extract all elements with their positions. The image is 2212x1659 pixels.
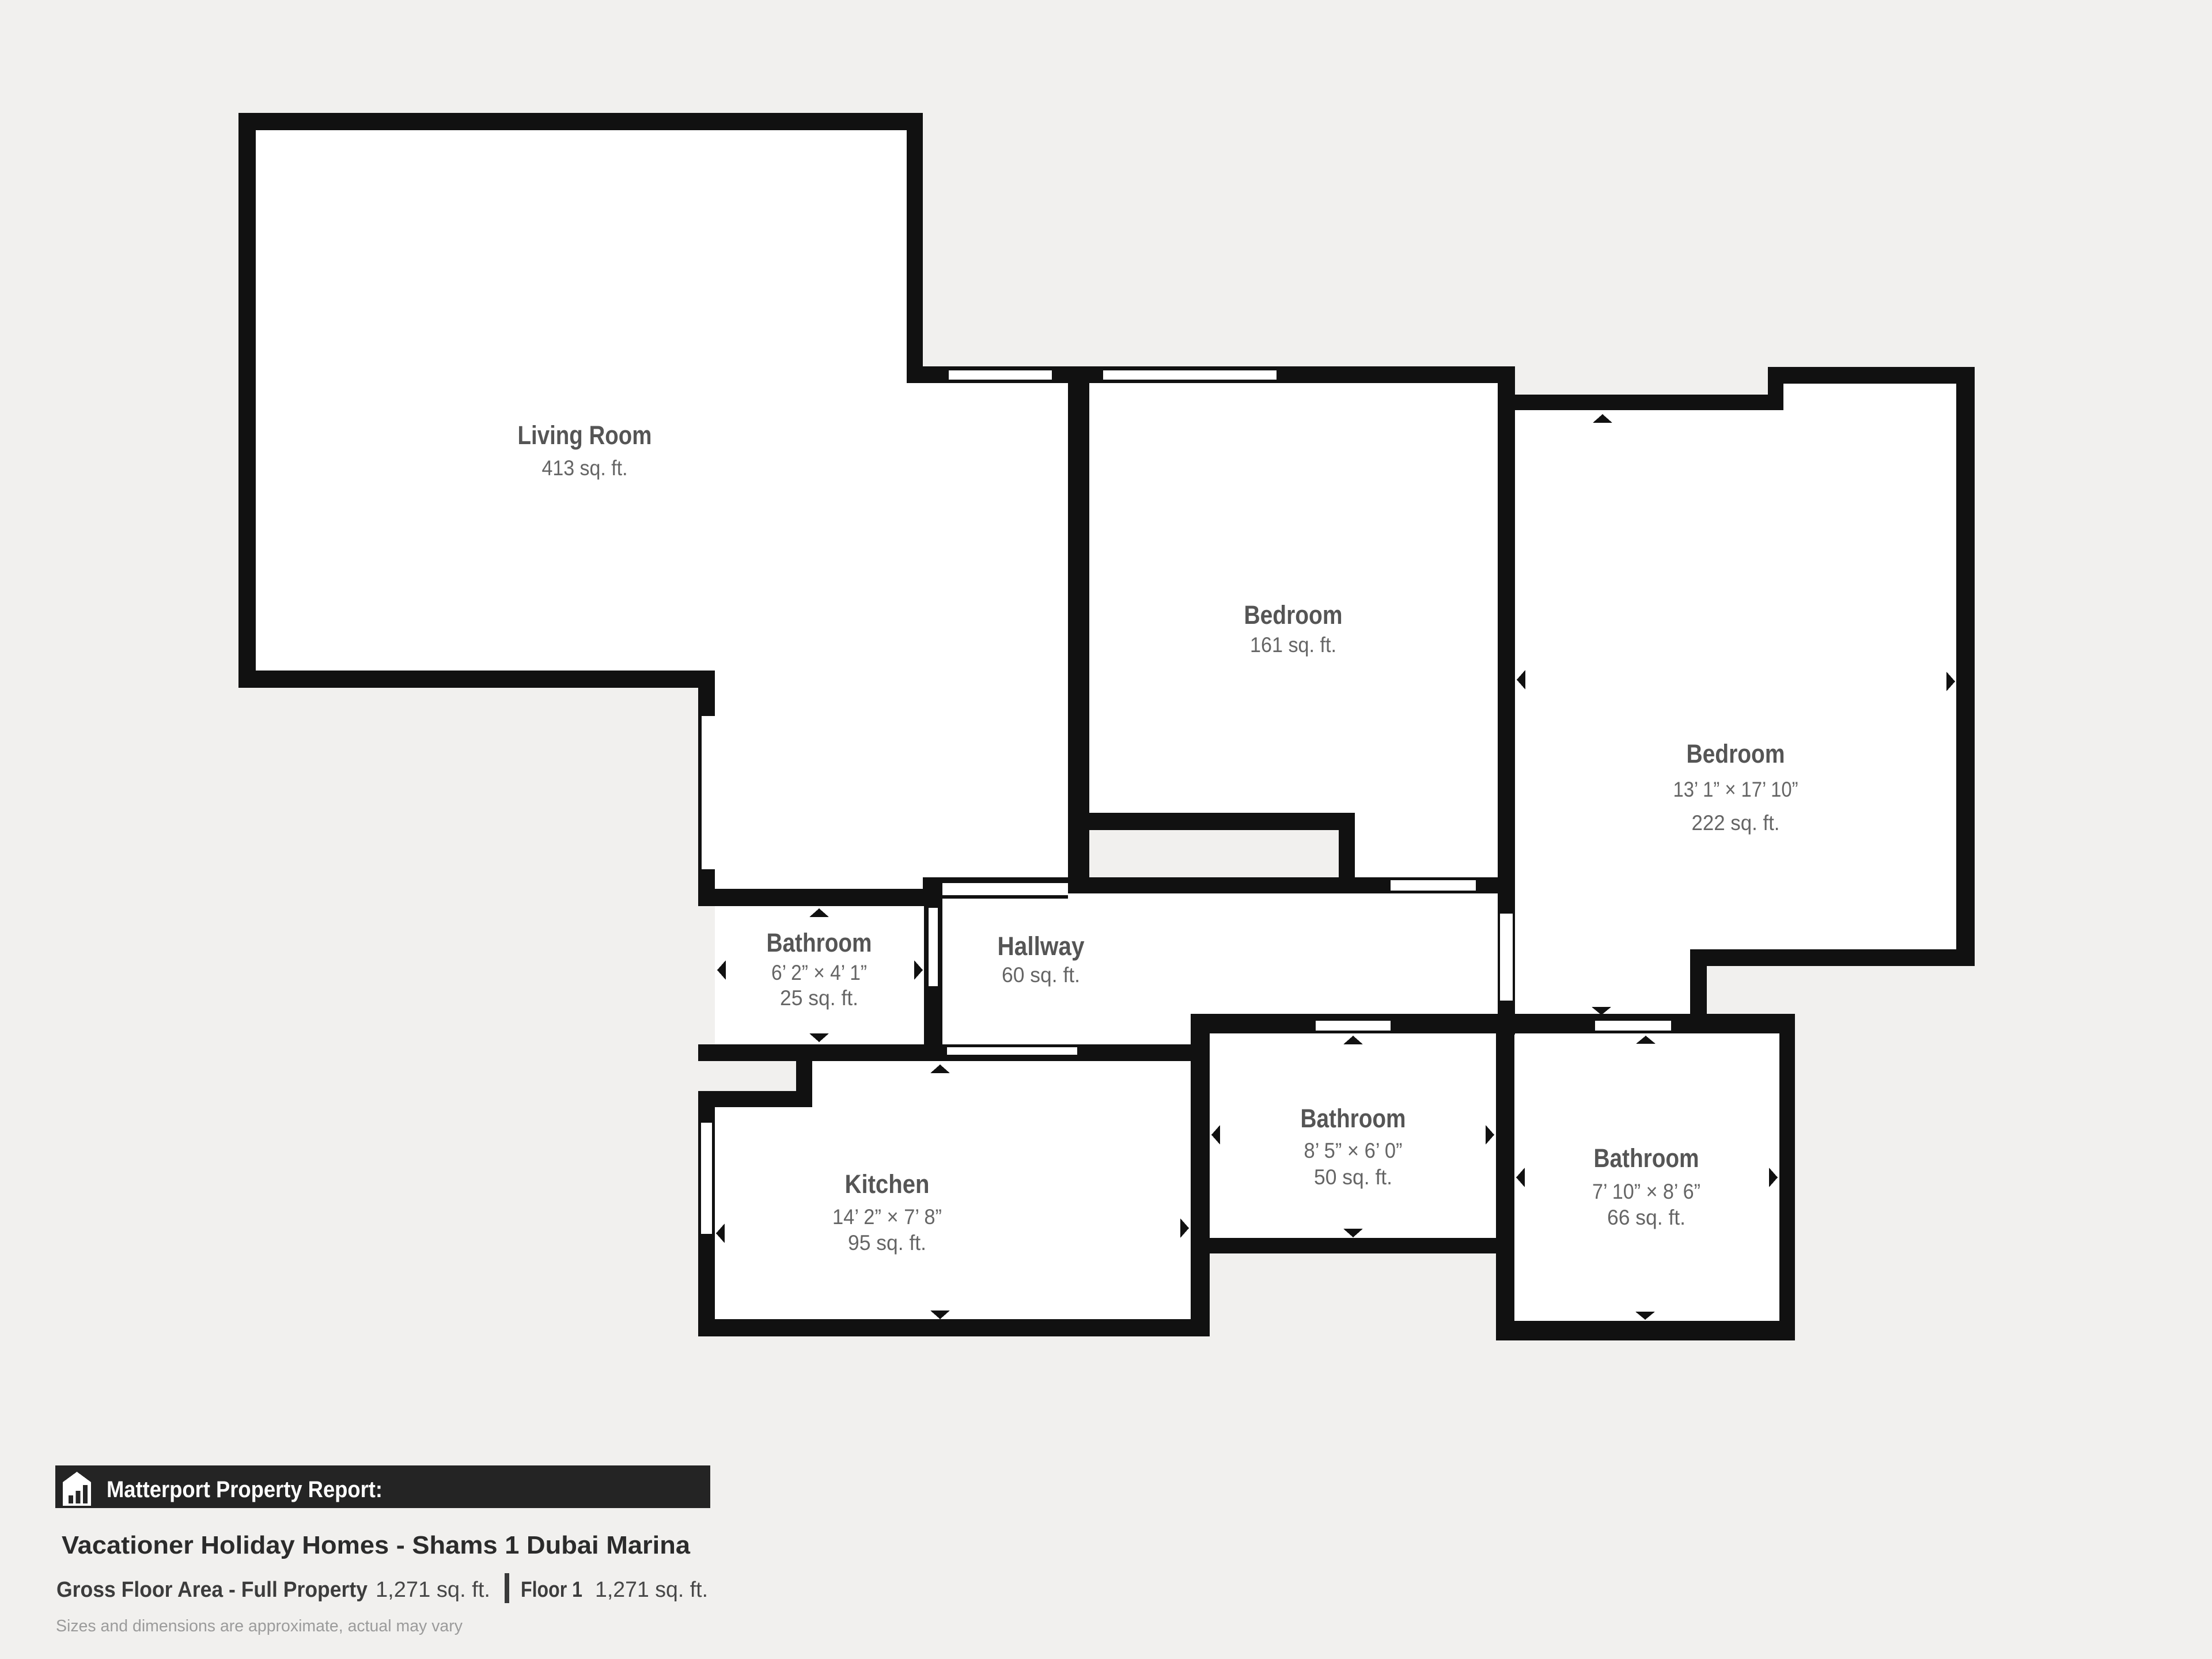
svg-text:8’ 5” × 6’ 0”: 8’ 5” × 6’ 0” <box>1304 1139 1403 1162</box>
svg-text:60 sq. ft.: 60 sq. ft. <box>1002 963 1080 987</box>
svg-text:Bathroom: Bathroom <box>767 928 872 957</box>
svg-text:7’ 10” × 8’ 6”: 7’ 10” × 8’ 6” <box>1592 1180 1700 1203</box>
svg-text:50 sq. ft.: 50 sq. ft. <box>1314 1165 1392 1189</box>
svg-text:13’ 1” × 17’ 10”: 13’ 1” × 17’ 10” <box>1673 778 1798 801</box>
svg-text:Vacationer Holiday Homes - Sha: Vacationer Holiday Homes - Shams 1 Dubai… <box>62 1531 691 1559</box>
svg-text:Sizes and dimensions are appro: Sizes and dimensions are approximate, ac… <box>56 1617 463 1635</box>
svg-text:6’ 2” × 4’ 1”: 6’ 2” × 4’ 1” <box>771 961 867 984</box>
svg-text:413 sq. ft.: 413 sq. ft. <box>542 456 628 480</box>
svg-text:Bedroom: Bedroom <box>1687 739 1785 768</box>
svg-text:Gross Floor Area - Full Proper: Gross Floor Area - Full Property <box>56 1578 368 1602</box>
svg-text:25 sq. ft.: 25 sq. ft. <box>780 986 858 1010</box>
svg-text:Floor 1: Floor 1 <box>521 1578 582 1602</box>
svg-text:Living Room: Living Room <box>518 421 652 450</box>
svg-text:95 sq. ft.: 95 sq. ft. <box>848 1231 926 1255</box>
svg-text:Bedroom: Bedroom <box>1244 600 1343 630</box>
svg-text:14’ 2” × 7’ 8”: 14’ 2” × 7’ 8” <box>832 1205 942 1229</box>
svg-text:161 sq. ft.: 161 sq. ft. <box>1250 633 1336 657</box>
svg-text:222 sq. ft.: 222 sq. ft. <box>1692 811 1780 835</box>
svg-text:Bathroom: Bathroom <box>1594 1143 1699 1173</box>
svg-text:Kitchen: Kitchen <box>845 1169 930 1199</box>
svg-text:Hallway: Hallway <box>998 931 1085 961</box>
svg-text:Bathroom: Bathroom <box>1301 1104 1406 1133</box>
svg-text:66 sq. ft.: 66 sq. ft. <box>1607 1206 1685 1229</box>
svg-text:1,271 sq. ft.: 1,271 sq. ft. <box>595 1578 708 1602</box>
svg-text:1,271 sq. ft.: 1,271 sq. ft. <box>376 1578 490 1602</box>
svg-text:Matterport Property Report:: Matterport Property Report: <box>107 1477 382 1502</box>
